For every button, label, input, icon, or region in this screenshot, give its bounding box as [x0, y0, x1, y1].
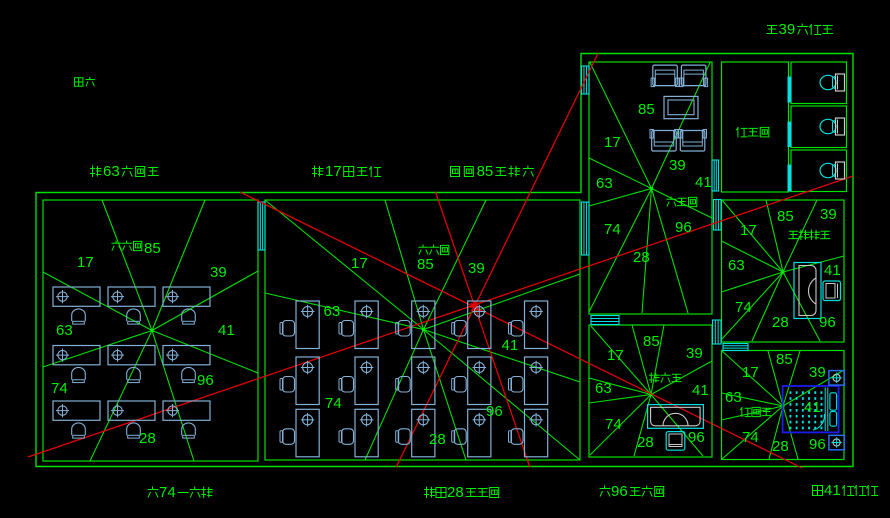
svg-text:41: 41 — [502, 337, 519, 354]
svg-text:17: 17 — [607, 347, 624, 364]
svg-text:63: 63 — [56, 322, 73, 339]
svg-text:39: 39 — [809, 364, 826, 381]
svg-text:17: 17 — [740, 222, 757, 239]
svg-text:74: 74 — [604, 221, 621, 238]
svg-text:41: 41 — [824, 262, 841, 279]
svg-text:74: 74 — [159, 484, 176, 501]
svg-text:39: 39 — [210, 264, 227, 281]
svg-text:96: 96 — [688, 429, 705, 446]
svg-text:85: 85 — [643, 333, 660, 350]
svg-text:85: 85 — [777, 208, 794, 225]
svg-text:17: 17 — [77, 254, 94, 271]
svg-text:74: 74 — [742, 429, 759, 446]
svg-text:39: 39 — [779, 21, 796, 38]
svg-text:39: 39 — [468, 260, 485, 277]
svg-text:39: 39 — [669, 157, 686, 174]
svg-text:41: 41 — [692, 382, 709, 399]
svg-text:85: 85 — [477, 163, 494, 180]
svg-text:28: 28 — [139, 430, 156, 447]
svg-text:63: 63 — [324, 303, 341, 320]
svg-text:17: 17 — [351, 255, 368, 272]
svg-text:63: 63 — [728, 257, 745, 274]
svg-text:74: 74 — [51, 380, 68, 397]
svg-text:85: 85 — [638, 101, 655, 118]
svg-text:63: 63 — [103, 163, 120, 180]
svg-text:39: 39 — [820, 206, 837, 223]
svg-text:96: 96 — [675, 219, 692, 236]
svg-text:28: 28 — [637, 434, 654, 451]
svg-text:74: 74 — [735, 299, 752, 316]
svg-text:85: 85 — [776, 351, 793, 368]
svg-text:17: 17 — [742, 364, 759, 381]
svg-text:85: 85 — [144, 240, 161, 257]
svg-text:28: 28 — [429, 431, 446, 448]
svg-text:28: 28 — [772, 314, 789, 331]
svg-text:96: 96 — [809, 436, 826, 453]
svg-text:41: 41 — [218, 322, 235, 339]
svg-text:96: 96 — [197, 372, 214, 389]
svg-text:28: 28 — [772, 438, 789, 455]
svg-text:96: 96 — [486, 403, 503, 420]
svg-text:63: 63 — [596, 175, 613, 192]
svg-text:41: 41 — [695, 174, 712, 191]
svg-text:63: 63 — [595, 380, 612, 397]
svg-text:96: 96 — [611, 483, 628, 500]
svg-text:85: 85 — [417, 256, 434, 273]
svg-text:41: 41 — [804, 399, 821, 416]
svg-text:74: 74 — [605, 416, 622, 433]
svg-text:41: 41 — [824, 482, 841, 499]
svg-text:17: 17 — [325, 163, 342, 180]
svg-text:39: 39 — [686, 345, 703, 362]
svg-text:96: 96 — [819, 314, 836, 331]
svg-text:17: 17 — [604, 134, 621, 151]
svg-text:63: 63 — [725, 389, 742, 406]
svg-text:74: 74 — [325, 395, 342, 412]
svg-text:28: 28 — [633, 249, 650, 266]
svg-text:28: 28 — [447, 484, 464, 501]
